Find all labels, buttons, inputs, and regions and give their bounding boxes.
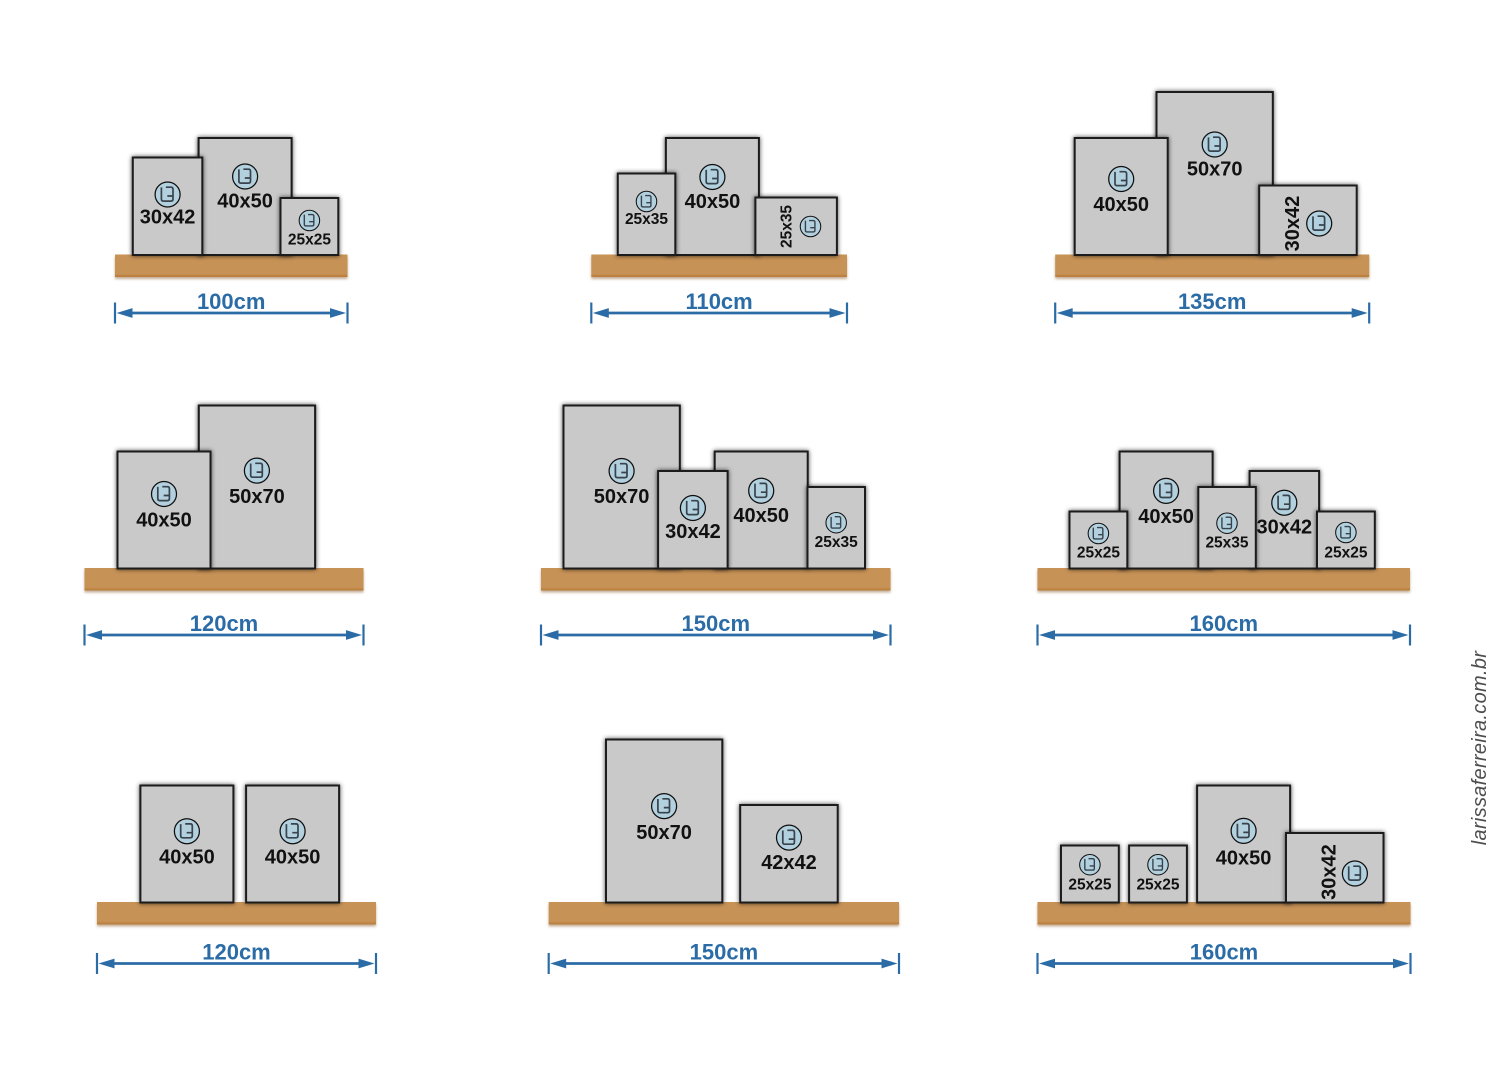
svg-text:30x42: 30x42 xyxy=(140,207,196,229)
svg-text:40x50: 40x50 xyxy=(159,846,215,868)
svg-text:25x25: 25x25 xyxy=(288,232,331,249)
svg-text:25x25: 25x25 xyxy=(1324,545,1367,562)
svg-text:110cm: 110cm xyxy=(685,289,752,314)
svg-text:120cm: 120cm xyxy=(202,939,271,964)
svg-text:150cm: 150cm xyxy=(690,939,759,964)
svg-text:42x42: 42x42 xyxy=(761,852,817,874)
svg-text:120cm: 120cm xyxy=(190,611,259,636)
svg-text:50x70: 50x70 xyxy=(636,822,692,844)
svg-text:50x70: 50x70 xyxy=(229,486,285,508)
svg-text:25x25: 25x25 xyxy=(1077,545,1120,562)
svg-text:25x25: 25x25 xyxy=(1136,877,1179,894)
svg-text:40x50: 40x50 xyxy=(136,510,192,532)
svg-text:30x42: 30x42 xyxy=(1319,844,1341,900)
svg-text:160cm: 160cm xyxy=(1190,611,1259,636)
svg-text:25x35: 25x35 xyxy=(625,211,668,228)
svg-text:25x35: 25x35 xyxy=(1205,534,1248,551)
svg-text:25x35: 25x35 xyxy=(779,205,796,248)
svg-text:160cm: 160cm xyxy=(1190,939,1259,964)
svg-text:25x35: 25x35 xyxy=(815,534,858,551)
svg-text:40x50: 40x50 xyxy=(265,846,321,868)
svg-text:25x25: 25x25 xyxy=(1068,877,1111,894)
svg-text:30x42: 30x42 xyxy=(665,521,721,543)
svg-text:larissaferreira.com.br: larissaferreira.com.br xyxy=(1469,650,1491,845)
svg-text:135cm: 135cm xyxy=(1178,289,1247,314)
svg-text:150cm: 150cm xyxy=(682,611,751,636)
svg-text:40x50: 40x50 xyxy=(1216,848,1272,870)
svg-text:40x50: 40x50 xyxy=(1138,506,1194,528)
svg-text:40x50: 40x50 xyxy=(1093,194,1149,216)
svg-text:40x50: 40x50 xyxy=(685,191,741,213)
svg-text:50x70: 50x70 xyxy=(594,486,650,508)
svg-text:40x50: 40x50 xyxy=(217,191,273,213)
svg-text:40x50: 40x50 xyxy=(733,505,789,527)
svg-text:30x42: 30x42 xyxy=(1282,196,1304,252)
svg-text:30x42: 30x42 xyxy=(1256,516,1312,538)
svg-text:100cm: 100cm xyxy=(197,289,266,314)
svg-text:50x70: 50x70 xyxy=(1187,159,1243,181)
